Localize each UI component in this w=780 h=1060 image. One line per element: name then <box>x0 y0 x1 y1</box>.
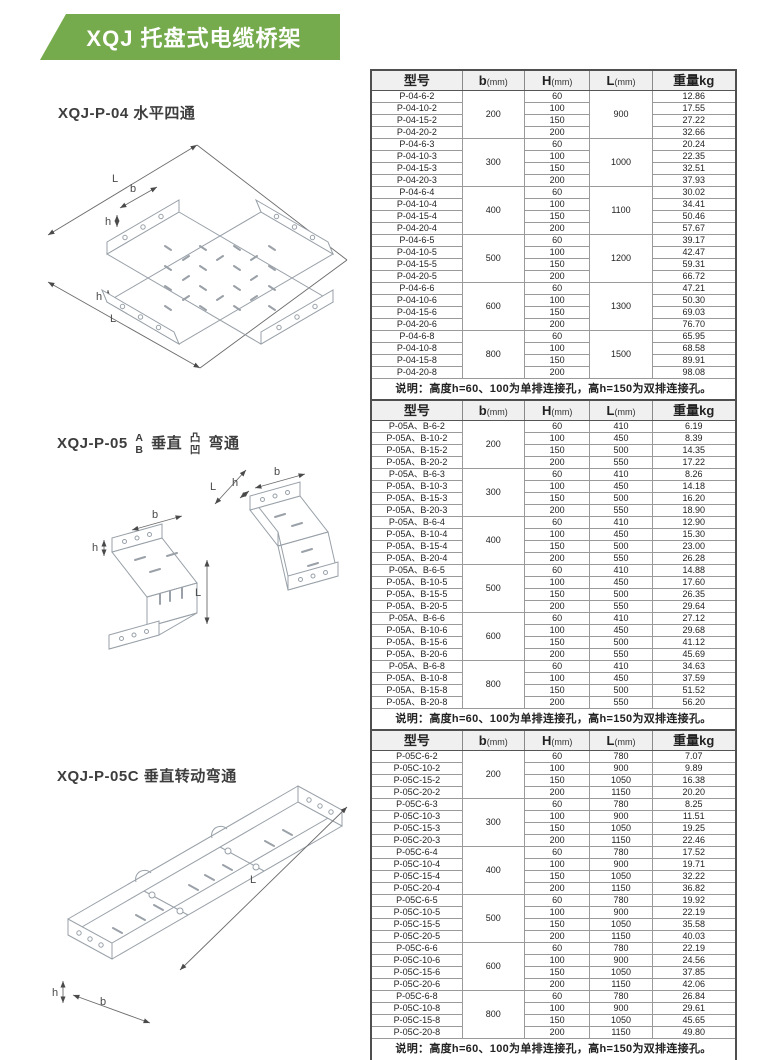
weight-cell: 26.35 <box>652 589 736 601</box>
dim-label-L: L <box>110 313 116 325</box>
model-cell: P-05A、B-6-3 <box>371 469 462 481</box>
model-cell: P-05A、B-15-3 <box>371 493 462 505</box>
weight-cell: 9.89 <box>652 763 736 775</box>
model-cell: P-04-6-8 <box>371 331 462 343</box>
table-row: P-05A、B-6-66006041027.12 <box>371 613 736 625</box>
table-row: P-04-6-440060110030.02 <box>371 187 736 199</box>
model-cell: P-05A、B-20-6 <box>371 649 462 661</box>
weight-cell: 14.88 <box>652 565 736 577</box>
l-cell: 900 <box>590 91 652 139</box>
h-cell: 100 <box>524 433 590 445</box>
table-header-row: 型号b(mm)H(mm)L(mm)重量kg <box>371 400 736 421</box>
h-cell: 150 <box>524 775 590 787</box>
weight-cell: 29.64 <box>652 601 736 613</box>
model-cell: P-05C-6-5 <box>371 895 462 907</box>
dim-label-b: b <box>130 183 136 195</box>
column-header: 重量kg <box>652 400 736 421</box>
table-row: P-05A、B-20-820055056.20 <box>371 697 736 709</box>
l-cell: 1050 <box>590 919 652 931</box>
p04-cross-drawing: L b h h L <box>20 140 365 400</box>
table-row: P-05C-20-5200115040.03 <box>371 931 736 943</box>
table-row: P-04-20-420057.67 <box>371 223 736 235</box>
column-header: 重量kg <box>652 730 736 751</box>
h-cell: 60 <box>524 469 590 481</box>
table-row: P-05C-6-44006078017.52 <box>371 847 736 859</box>
b-cell: 600 <box>462 283 524 331</box>
weight-cell: 37.85 <box>652 967 736 979</box>
weight-cell: 7.07 <box>652 751 736 763</box>
model-cell: P-05A、B-20-8 <box>371 697 462 709</box>
table-row: P-05A、B-10-810045037.59 <box>371 673 736 685</box>
table-row: P-04-20-620076.70 <box>371 319 736 331</box>
h-cell: 150 <box>524 589 590 601</box>
h-cell: 200 <box>524 601 590 613</box>
table-note-row: 说明：高度h=60、100为单排连接孔，高h=150为双排连接孔。 <box>371 1039 736 1060</box>
weight-cell: 76.70 <box>652 319 736 331</box>
h-cell: 200 <box>524 553 590 565</box>
table-row: P-05C-20-3200115022.46 <box>371 835 736 847</box>
dim-label-b: b <box>274 466 280 478</box>
h-cell: 150 <box>524 211 590 223</box>
table-row: P-05C-20-6200115042.06 <box>371 979 736 991</box>
weight-cell: 26.28 <box>652 553 736 565</box>
weight-cell: 27.22 <box>652 115 736 127</box>
h-cell: 150 <box>524 637 590 649</box>
h-cell: 60 <box>524 751 590 763</box>
h-cell: 60 <box>524 565 590 577</box>
h-cell: 100 <box>524 811 590 823</box>
weight-cell: 24.56 <box>652 955 736 967</box>
p05c-articulated-drawing: L h b <box>28 785 368 1050</box>
h-cell: 60 <box>524 943 590 955</box>
h-cell: 150 <box>524 967 590 979</box>
l-cell: 410 <box>590 469 652 481</box>
h-cell: 150 <box>524 115 590 127</box>
label-stack-tuao: 凸 凹 <box>190 432 201 456</box>
l-cell: 900 <box>590 811 652 823</box>
table-row: P-05C-20-4200115036.82 <box>371 883 736 895</box>
b-cell: 400 <box>462 187 524 235</box>
table-row: P-05C-6-88006078026.84 <box>371 991 736 1003</box>
table-row: P-04-20-220032.66 <box>371 127 736 139</box>
h-cell: 150 <box>524 541 590 553</box>
l-cell: 410 <box>590 421 652 433</box>
weight-cell: 50.30 <box>652 295 736 307</box>
weight-cell: 35.58 <box>652 919 736 931</box>
table-row: P-05A、B-10-510045017.60 <box>371 577 736 589</box>
l-cell: 1150 <box>590 1027 652 1039</box>
table-row: P-04-20-820098.08 <box>371 367 736 379</box>
weight-cell: 11.51 <box>652 811 736 823</box>
h-cell: 150 <box>524 445 590 457</box>
table-row: P-05A、B-20-220055017.22 <box>371 457 736 469</box>
table-row: P-05A、B-6-3300604108.26 <box>371 469 736 481</box>
table-row: P-04-10-810068.58 <box>371 343 736 355</box>
table-row: P-05C-10-21009009.89 <box>371 763 736 775</box>
h-cell: 100 <box>524 907 590 919</box>
weight-cell: 89.91 <box>652 355 736 367</box>
table-row: P-05A、B-15-515050026.35 <box>371 589 736 601</box>
weight-cell: 36.82 <box>652 883 736 895</box>
model-cell: P-05C-20-6 <box>371 979 462 991</box>
weight-cell: 59.31 <box>652 259 736 271</box>
table-row: P-04-20-520066.72 <box>371 271 736 283</box>
l-cell: 780 <box>590 895 652 907</box>
table-row: P-05C-15-6150105037.85 <box>371 967 736 979</box>
dim-label-h: h <box>232 477 238 489</box>
model-cell: P-05C-6-6 <box>371 943 462 955</box>
h-cell: 100 <box>524 343 590 355</box>
model-cell: P-05A、B-6-8 <box>371 661 462 673</box>
l-cell: 410 <box>590 565 652 577</box>
table-row: P-05C-15-5150105035.58 <box>371 919 736 931</box>
model-cell: P-05A、B-15-8 <box>371 685 462 697</box>
model-cell: P-04-10-4 <box>371 199 462 211</box>
weight-cell: 47.21 <box>652 283 736 295</box>
spec-table-p05: 型号b(mm)H(mm)L(mm)重量kgP-05A、B-6-220060410… <box>370 399 737 732</box>
l-cell: 550 <box>590 601 652 613</box>
h-cell: 60 <box>524 139 590 151</box>
h-cell: 100 <box>524 859 590 871</box>
model-cell: P-05C-20-3 <box>371 835 462 847</box>
weight-cell: 20.20 <box>652 787 736 799</box>
column-header: b(mm) <box>462 70 524 91</box>
column-header: 重量kg <box>652 70 736 91</box>
table-row: P-05A、B-15-815050051.52 <box>371 685 736 697</box>
table-row: P-04-10-210017.55 <box>371 103 736 115</box>
h-cell: 150 <box>524 919 590 931</box>
dim-label-h: h <box>105 216 111 228</box>
model-cell: P-05A、B-10-6 <box>371 625 462 637</box>
table-row: P-05A、B-20-620055045.69 <box>371 649 736 661</box>
b-cell: 300 <box>462 139 524 187</box>
h-cell: 60 <box>524 799 590 811</box>
weight-cell: 41.12 <box>652 637 736 649</box>
l-cell: 1300 <box>590 283 652 331</box>
weight-cell: 16.20 <box>652 493 736 505</box>
model-cell: P-04-6-6 <box>371 283 462 295</box>
l-cell: 450 <box>590 433 652 445</box>
column-header: 型号 <box>371 730 462 751</box>
l-cell: 450 <box>590 577 652 589</box>
model-cell: P-04-20-3 <box>371 175 462 187</box>
weight-cell: 8.26 <box>652 469 736 481</box>
weight-cell: 29.61 <box>652 1003 736 1015</box>
h-cell: 200 <box>524 787 590 799</box>
page-title: XQJ 托盘式电缆桥架 <box>78 21 301 53</box>
h-cell: 150 <box>524 823 590 835</box>
h-cell: 100 <box>524 247 590 259</box>
l-cell: 410 <box>590 517 652 529</box>
table-note: 说明：高度h=60、100为单排连接孔，高h=150为双排连接孔。 <box>371 379 736 402</box>
weight-cell: 20.24 <box>652 139 736 151</box>
figure-p05: h b L L h b <box>50 462 370 707</box>
table-row: P-05A、B-15-615050041.12 <box>371 637 736 649</box>
weight-cell: 12.86 <box>652 91 736 103</box>
table-row: P-05A、B-10-310045014.18 <box>371 481 736 493</box>
h-cell: 60 <box>524 331 590 343</box>
model-cell: P-05A、B-6-5 <box>371 565 462 577</box>
model-cell: P-05C-15-2 <box>371 775 462 787</box>
model-cell: P-04-20-5 <box>371 271 462 283</box>
l-cell: 550 <box>590 457 652 469</box>
model-cell: P-04-10-8 <box>371 343 462 355</box>
b-cell: 600 <box>462 943 524 991</box>
weight-cell: 32.51 <box>652 163 736 175</box>
h-cell: 200 <box>524 505 590 517</box>
l-cell: 1000 <box>590 139 652 187</box>
b-cell: 600 <box>462 613 524 661</box>
weight-cell: 29.68 <box>652 625 736 637</box>
weight-cell: 65.95 <box>652 331 736 343</box>
l-cell: 1150 <box>590 979 652 991</box>
weight-cell: 23.00 <box>652 541 736 553</box>
table-row: P-05A、B-6-88006041034.63 <box>371 661 736 673</box>
weight-cell: 19.71 <box>652 859 736 871</box>
h-cell: 200 <box>524 931 590 943</box>
dim-label-L: L <box>250 874 256 886</box>
model-cell: P-05C-10-5 <box>371 907 462 919</box>
weight-cell: 8.39 <box>652 433 736 445</box>
h-cell: 200 <box>524 175 590 187</box>
dim-label-L: L <box>210 481 216 493</box>
table-row: P-04-6-880060150065.95 <box>371 331 736 343</box>
column-header: L(mm) <box>590 400 652 421</box>
weight-cell: 22.19 <box>652 943 736 955</box>
label-b: B <box>135 444 143 456</box>
weight-cell: 45.65 <box>652 1015 736 1027</box>
model-cell: P-05C-20-2 <box>371 787 462 799</box>
h-cell: 100 <box>524 625 590 637</box>
table-row: P-05A、B-6-55006041014.88 <box>371 565 736 577</box>
model-cell: P-05C-20-5 <box>371 931 462 943</box>
model-cell: P-04-15-2 <box>371 115 462 127</box>
model-cell: P-04-6-3 <box>371 139 462 151</box>
b-cell: 200 <box>462 421 524 469</box>
model-cell: P-04-6-4 <box>371 187 462 199</box>
table-note-row: 说明：高度h=60、100为单排连接孔，高h=150为双排连接孔。 <box>371 379 736 402</box>
model-cell: P-05A、B-15-5 <box>371 589 462 601</box>
l-cell: 1050 <box>590 775 652 787</box>
model-cell: P-05C-10-3 <box>371 811 462 823</box>
dim-label-L: L <box>112 173 118 185</box>
dim-label-L: L <box>195 587 201 599</box>
spec-table-p04-container: 型号b(mm)H(mm)L(mm)重量kgP-04-6-22006090012.… <box>370 69 737 387</box>
model-cell: P-05C-10-4 <box>371 859 462 871</box>
l-cell: 450 <box>590 673 652 685</box>
table-row: P-05C-15-8150105045.65 <box>371 1015 736 1027</box>
table-row: P-04-15-515059.31 <box>371 259 736 271</box>
spec-table-p05c-container: 型号b(mm)H(mm)L(mm)重量kgP-05C-6-2200607807.… <box>370 729 737 1047</box>
label-ao: 凹 <box>190 444 201 456</box>
table-row: P-05A、B-15-315050016.20 <box>371 493 736 505</box>
weight-cell: 69.03 <box>652 307 736 319</box>
model-cell: P-05A、B-20-4 <box>371 553 462 565</box>
h-cell: 100 <box>524 199 590 211</box>
label-suffix: 弯通 <box>209 435 240 452</box>
h-cell: 100 <box>524 103 590 115</box>
table-row: P-04-10-510042.47 <box>371 247 736 259</box>
dim-label-h: h <box>96 291 102 303</box>
h-cell: 100 <box>524 955 590 967</box>
table-row: P-04-15-315032.51 <box>371 163 736 175</box>
page-title-banner: XQJ 托盘式电缆桥架 <box>40 14 340 60</box>
h-cell: 60 <box>524 187 590 199</box>
model-cell: P-05C-6-4 <box>371 847 462 859</box>
b-cell: 200 <box>462 91 524 139</box>
table-row: P-05A、B-15-215050014.35 <box>371 445 736 457</box>
table-row: P-05A、B-10-21004508.39 <box>371 433 736 445</box>
table-row: P-05C-20-2200115020.20 <box>371 787 736 799</box>
l-cell: 780 <box>590 943 652 955</box>
l-cell: 1050 <box>590 823 652 835</box>
column-header: H(mm) <box>524 400 590 421</box>
weight-cell: 66.72 <box>652 271 736 283</box>
l-cell: 1150 <box>590 787 652 799</box>
table-row: P-04-20-320037.93 <box>371 175 736 187</box>
column-header: b(mm) <box>462 730 524 751</box>
weight-cell: 6.19 <box>652 421 736 433</box>
model-cell: P-05C-15-3 <box>371 823 462 835</box>
weight-cell: 19.92 <box>652 895 736 907</box>
h-cell: 100 <box>524 577 590 589</box>
table-row: P-05C-6-2200607807.07 <box>371 751 736 763</box>
b-cell: 400 <box>462 517 524 565</box>
h-cell: 150 <box>524 163 590 175</box>
model-cell: P-05C-10-2 <box>371 763 462 775</box>
table-row: P-05C-10-310090011.51 <box>371 811 736 823</box>
model-cell: P-05C-20-8 <box>371 1027 462 1039</box>
table-row: P-04-6-660060130047.21 <box>371 283 736 295</box>
table-row: P-04-6-22006090012.86 <box>371 91 736 103</box>
h-cell: 200 <box>524 883 590 895</box>
table-note: 说明：高度h=60、100为单排连接孔，高h=150为双排连接孔。 <box>371 1039 736 1060</box>
model-cell: P-05A、B-10-4 <box>371 529 462 541</box>
h-cell: 100 <box>524 763 590 775</box>
model-cell: P-05A、B-6-4 <box>371 517 462 529</box>
model-cell: P-05A、B-6-2 <box>371 421 462 433</box>
label-prefix: XQJ-P-05 <box>57 435 128 452</box>
table-row: P-05A、B-20-320055018.90 <box>371 505 736 517</box>
dim-label-h: h <box>52 987 58 999</box>
h-cell: 60 <box>524 235 590 247</box>
model-cell: P-05A、B-20-3 <box>371 505 462 517</box>
weight-cell: 22.19 <box>652 907 736 919</box>
b-cell: 500 <box>462 235 524 283</box>
weight-cell: 39.17 <box>652 235 736 247</box>
model-cell: P-05A、B-10-5 <box>371 577 462 589</box>
h-cell: 200 <box>524 319 590 331</box>
b-cell: 800 <box>462 331 524 379</box>
h-cell: 200 <box>524 367 590 379</box>
l-cell: 500 <box>590 493 652 505</box>
l-cell: 900 <box>590 763 652 775</box>
table-row: P-05A、B-15-415050023.00 <box>371 541 736 553</box>
weight-cell: 32.66 <box>652 127 736 139</box>
h-cell: 200 <box>524 697 590 709</box>
b-cell: 400 <box>462 847 524 895</box>
h-cell: 100 <box>524 1003 590 1015</box>
weight-cell: 17.52 <box>652 847 736 859</box>
l-cell: 500 <box>590 445 652 457</box>
h-cell: 100 <box>524 295 590 307</box>
model-cell: P-04-15-3 <box>371 163 462 175</box>
l-cell: 410 <box>590 661 652 673</box>
h-cell: 150 <box>524 307 590 319</box>
model-cell: P-04-10-6 <box>371 295 462 307</box>
l-cell: 1050 <box>590 967 652 979</box>
table-row: P-05C-10-510090022.19 <box>371 907 736 919</box>
model-cell: P-05C-10-6 <box>371 955 462 967</box>
l-cell: 1150 <box>590 931 652 943</box>
l-cell: 780 <box>590 847 652 859</box>
l-cell: 550 <box>590 505 652 517</box>
l-cell: 1050 <box>590 871 652 883</box>
model-cell: P-05A、B-10-8 <box>371 673 462 685</box>
weight-cell: 17.22 <box>652 457 736 469</box>
b-cell: 200 <box>462 751 524 799</box>
weight-cell: 37.59 <box>652 673 736 685</box>
l-cell: 550 <box>590 697 652 709</box>
column-header: L(mm) <box>590 70 652 91</box>
l-cell: 1200 <box>590 235 652 283</box>
b-cell: 300 <box>462 799 524 847</box>
l-cell: 1150 <box>590 883 652 895</box>
weight-cell: 14.35 <box>652 445 736 457</box>
weight-cell: 15.30 <box>652 529 736 541</box>
model-cell: P-05C-10-8 <box>371 1003 462 1015</box>
label-stack-ab: A B <box>135 432 143 456</box>
b-cell: 300 <box>462 469 524 517</box>
model-cell: P-04-20-4 <box>371 223 462 235</box>
model-cell: P-05C-20-4 <box>371 883 462 895</box>
table-row: P-04-15-815089.91 <box>371 355 736 367</box>
weight-cell: 22.35 <box>652 151 736 163</box>
h-cell: 150 <box>524 685 590 697</box>
table-row: P-05C-6-55006078019.92 <box>371 895 736 907</box>
table-header-row: 型号b(mm)H(mm)L(mm)重量kg <box>371 70 736 91</box>
l-cell: 450 <box>590 625 652 637</box>
model-cell: P-05C-15-6 <box>371 967 462 979</box>
weight-cell: 98.08 <box>652 367 736 379</box>
l-cell: 1150 <box>590 835 652 847</box>
table-row: P-05C-10-610090024.56 <box>371 955 736 967</box>
h-cell: 150 <box>524 355 590 367</box>
weight-cell: 17.60 <box>652 577 736 589</box>
model-cell: P-05A、B-15-6 <box>371 637 462 649</box>
h-cell: 100 <box>524 529 590 541</box>
l-cell: 1500 <box>590 331 652 379</box>
model-cell: P-04-15-8 <box>371 355 462 367</box>
catalog-page: XQJ 托盘式电缆桥架 XQJ-P-04 水平四通 <box>0 0 780 1060</box>
table-row: P-05C-6-3300607808.25 <box>371 799 736 811</box>
weight-cell: 8.25 <box>652 799 736 811</box>
model-cell: P-05A、B-15-2 <box>371 445 462 457</box>
table-row: P-05C-10-810090029.61 <box>371 1003 736 1015</box>
table-row: P-04-10-310022.35 <box>371 151 736 163</box>
table-row: P-05A、B-20-520055029.64 <box>371 601 736 613</box>
h-cell: 60 <box>524 661 590 673</box>
column-header: H(mm) <box>524 730 590 751</box>
table-row: P-05C-20-8200115049.80 <box>371 1027 736 1039</box>
table-header-row: 型号b(mm)H(mm)L(mm)重量kg <box>371 730 736 751</box>
weight-cell: 22.46 <box>652 835 736 847</box>
l-cell: 500 <box>590 637 652 649</box>
h-cell: 150 <box>524 1015 590 1027</box>
model-cell: P-05A、B-20-5 <box>371 601 462 613</box>
weight-cell: 12.90 <box>652 517 736 529</box>
dim-label-h: h <box>92 542 98 554</box>
